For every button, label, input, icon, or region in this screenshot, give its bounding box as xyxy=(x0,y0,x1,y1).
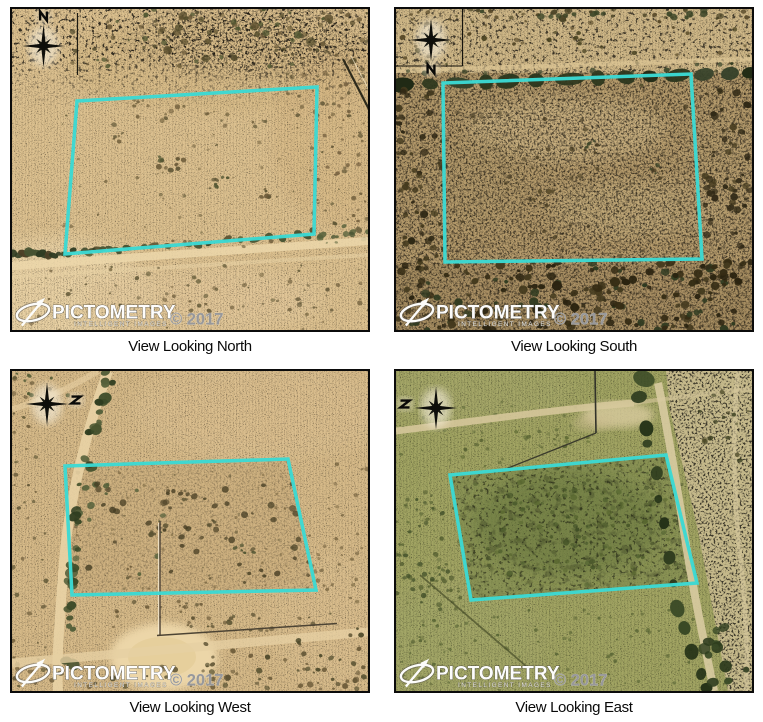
svg-text:INTELLIGENT IMAGES: INTELLIGENT IMAGES xyxy=(74,682,168,689)
svg-text:INTELLIGENT IMAGES: INTELLIGENT IMAGES xyxy=(458,682,552,689)
svg-text:INTELLIGENT IMAGES: INTELLIGENT IMAGES xyxy=(74,321,168,328)
svg-text:© 2017: © 2017 xyxy=(170,672,223,690)
svg-text:© 2017: © 2017 xyxy=(554,672,607,690)
svg-text:INTELLIGENT IMAGES: INTELLIGENT IMAGES xyxy=(458,321,552,328)
svg-text:© 2017: © 2017 xyxy=(170,311,223,329)
svg-text:© 2017: © 2017 xyxy=(554,311,607,329)
